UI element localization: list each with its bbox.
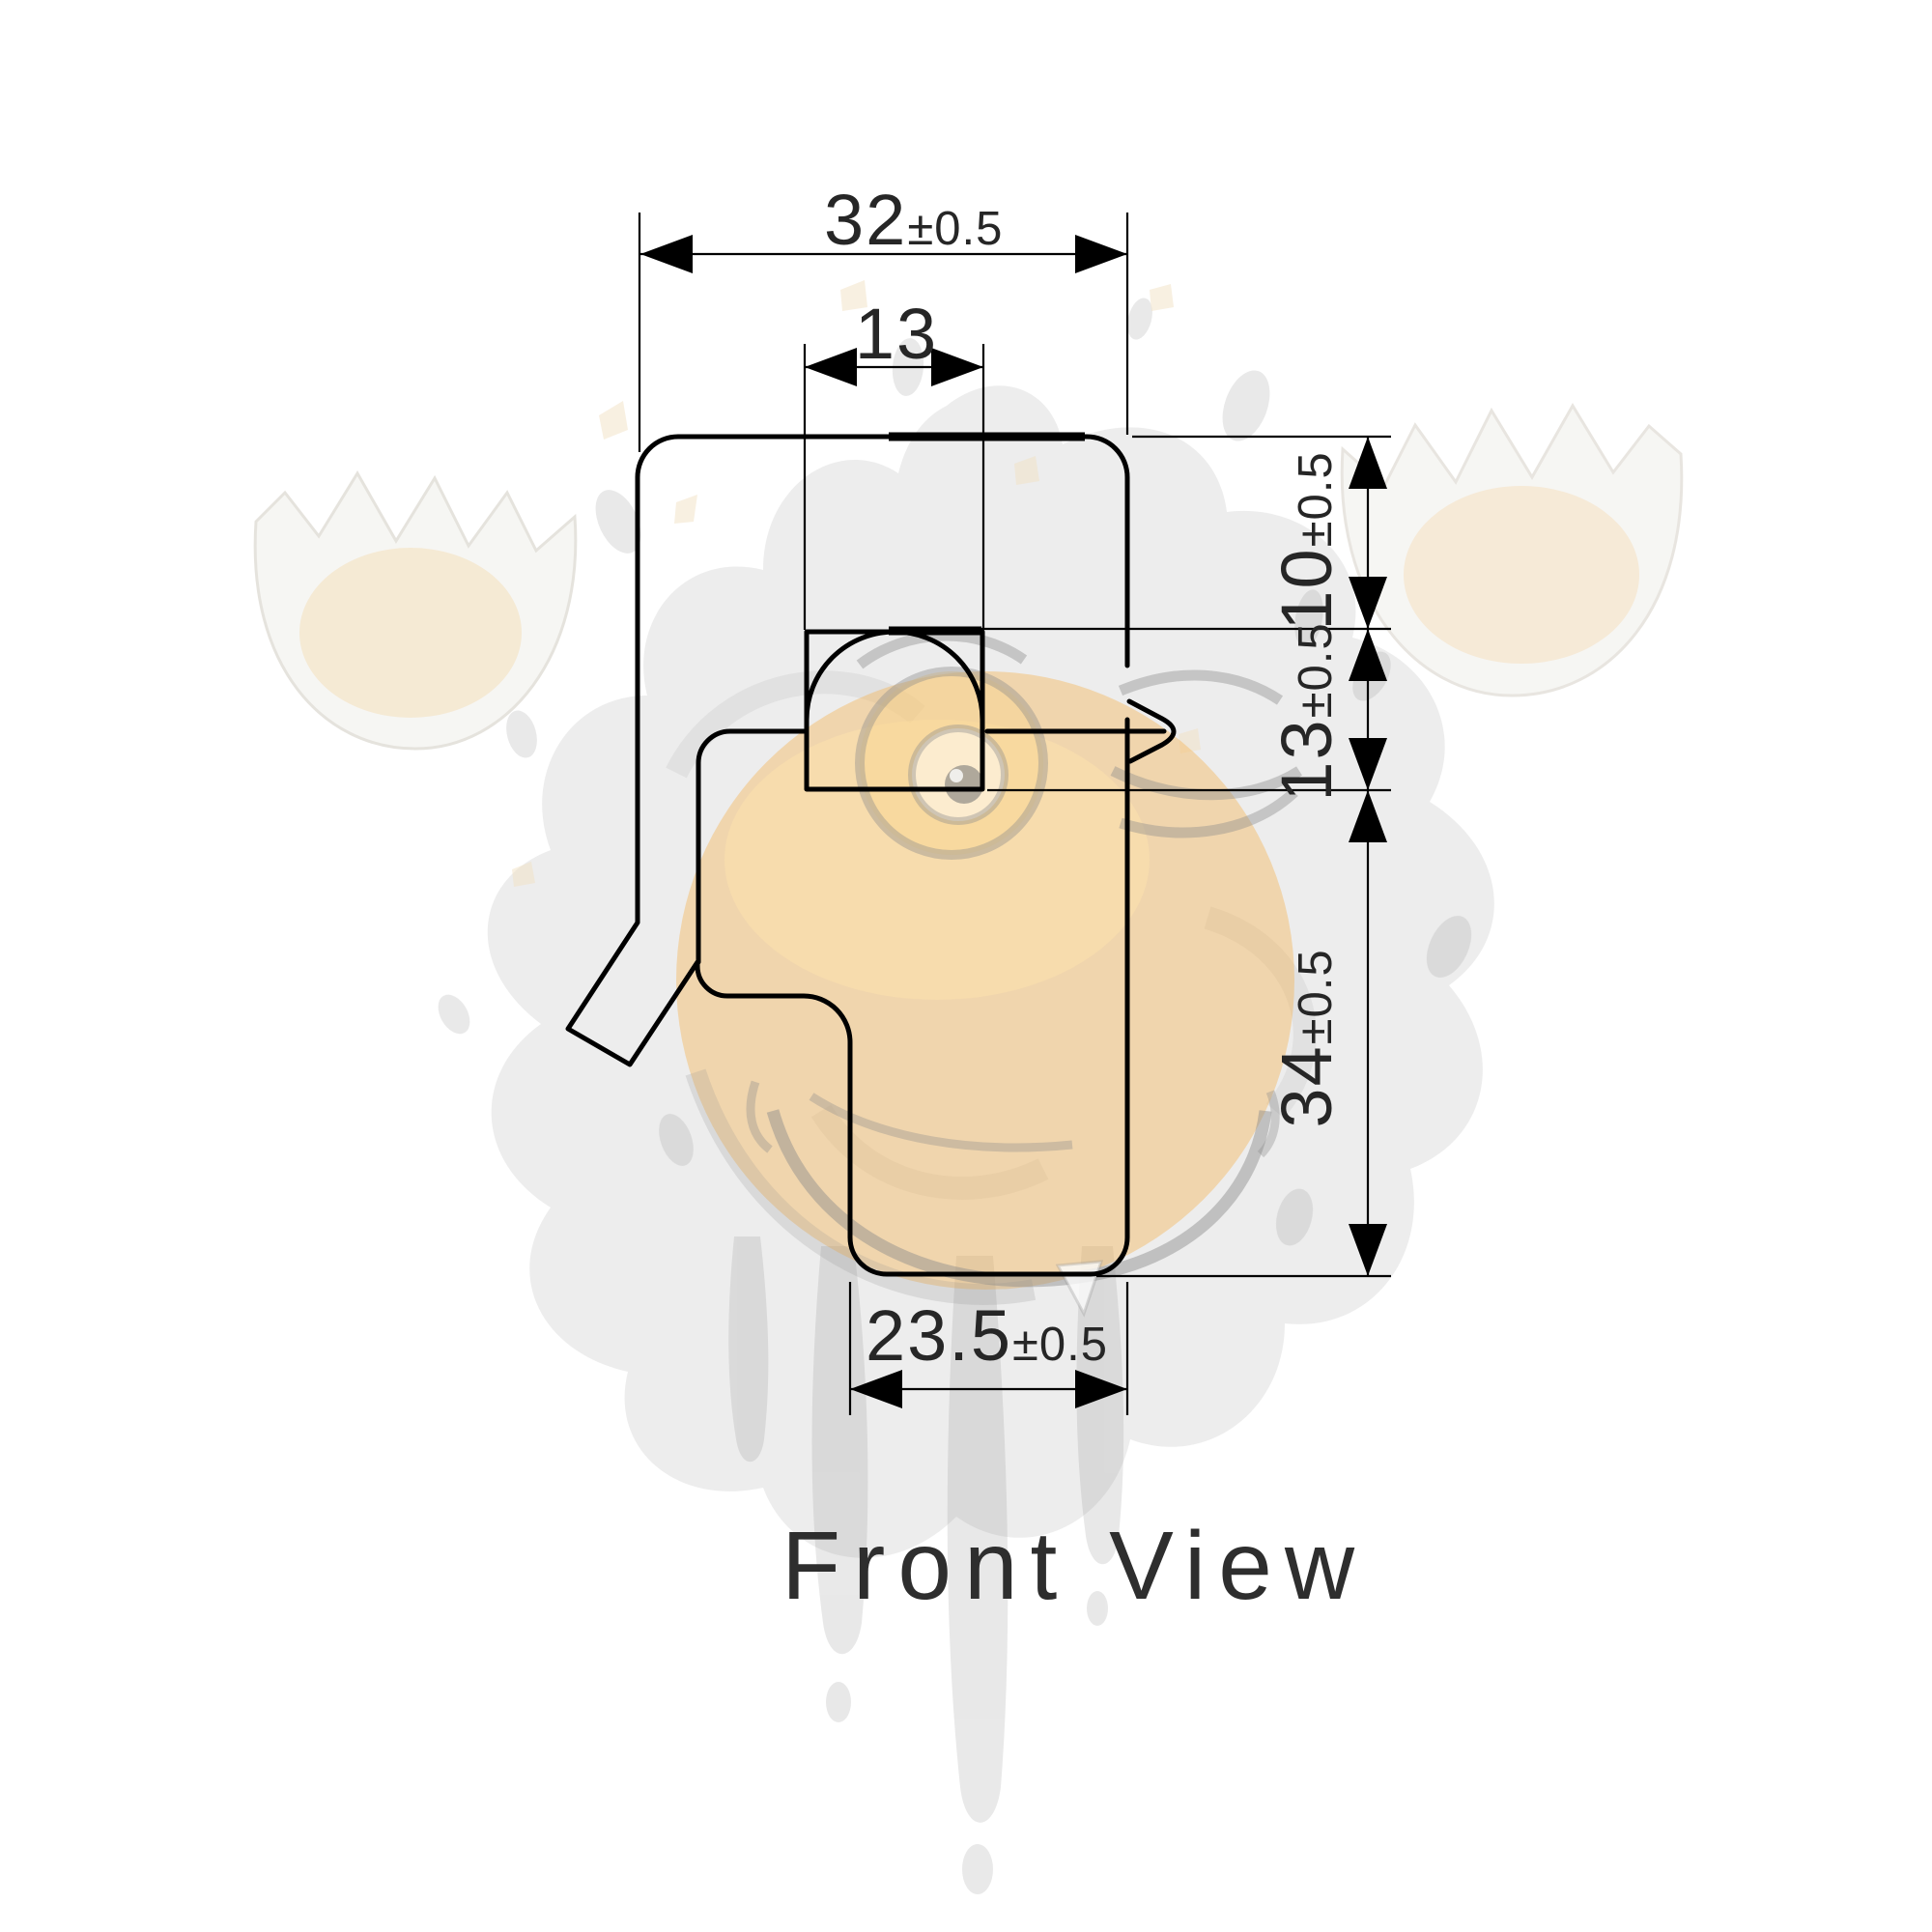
technical-drawing-svg: 32±0.5 13 10±0.5 13±0.5 34±0.5 23.5±0.5 (0, 0, 1932, 1932)
open-eye-pupil (945, 765, 983, 804)
arrow-right (931, 348, 983, 386)
eggshell-right (1342, 406, 1682, 696)
eggshell-left (255, 473, 576, 749)
drawing-canvas: 32±0.5 13 10±0.5 13±0.5 34±0.5 23.5±0.5 (0, 0, 1932, 1932)
eggshell-left-interior (299, 548, 522, 718)
view-title: Front View (781, 1512, 1367, 1620)
arrow-left (640, 235, 693, 273)
open-eye-glint (950, 769, 963, 782)
dim-slot-width-label: 13 (855, 294, 938, 374)
eggshell-right-interior (1404, 486, 1639, 664)
watermark-egg-splat (255, 280, 1682, 1894)
arrow-left (805, 348, 857, 386)
dim-top-width-label: 32±0.5 (824, 180, 1003, 260)
arrow-right (1075, 235, 1127, 273)
